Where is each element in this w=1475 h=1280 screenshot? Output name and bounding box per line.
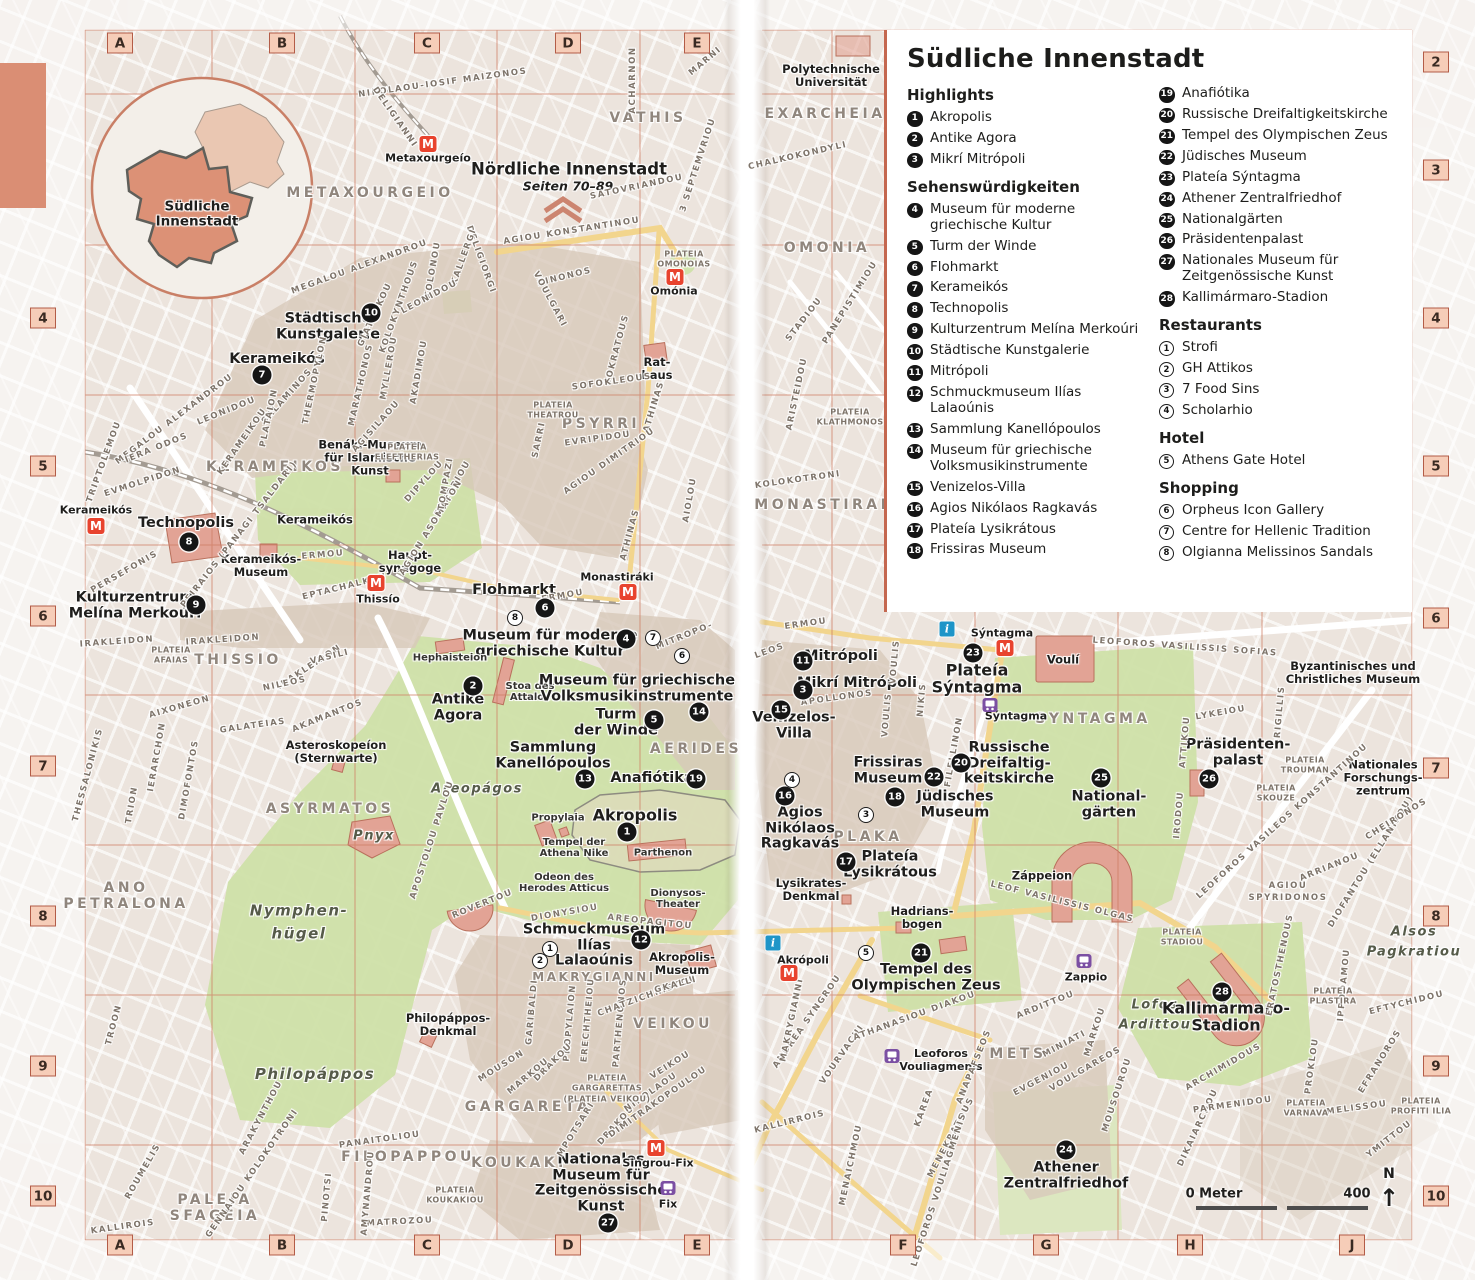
legend-item: 15Venizelos-Villa bbox=[907, 480, 1147, 496]
station-label: Thissío bbox=[356, 593, 400, 606]
sight-legend-marker-20: 20 bbox=[1159, 108, 1175, 124]
poi-label: Präsidenten- palast bbox=[1186, 737, 1291, 768]
terrain-label: Pnyx bbox=[353, 826, 395, 846]
legend-item-label: Russische Dreifaltigkeitskirche bbox=[1182, 106, 1388, 122]
sight-legend-marker-15: 15 bbox=[907, 481, 923, 497]
grid-letter-J: J bbox=[1339, 1235, 1365, 1256]
poi-label: Russische Dreifaltig- keitskirche bbox=[964, 741, 1054, 788]
station-label: Zappio bbox=[1065, 971, 1107, 984]
poi-label: Asteroskopeíon (Sternwarte) bbox=[286, 739, 387, 765]
legend-item-label: 7 Food Sins bbox=[1182, 381, 1259, 397]
district-label: ANO PETRALONA bbox=[63, 880, 188, 912]
legend-item-label: Kallimármaro-Stadion bbox=[1182, 289, 1328, 305]
poi-label: Voulí bbox=[1047, 654, 1079, 667]
legend-item: 25Nationalgärten bbox=[1159, 212, 1400, 228]
sight-marker-10: 10 bbox=[362, 304, 381, 323]
legend-item-label: Anafiótika bbox=[1182, 85, 1250, 101]
poi-label: Akropolis- Museum bbox=[649, 951, 715, 977]
legend-item: 10Städtische Kunstgalerie bbox=[907, 343, 1147, 359]
sight-legend-marker-17: 17 bbox=[907, 523, 923, 539]
legend-item-label: Athens Gate Hotel bbox=[1182, 452, 1305, 468]
venue-legend-marker-4: 4 bbox=[1159, 404, 1174, 419]
poi-label: Antike Agora bbox=[432, 692, 485, 723]
station-label: Metaxourgeío bbox=[385, 152, 471, 165]
legend-item-label: Nationales Museum für Zeitgenössische Ku… bbox=[1182, 252, 1338, 284]
poi-label: Agios Nikólaos Ragkavás bbox=[761, 806, 840, 853]
poi-label: National- gärten bbox=[1072, 789, 1147, 820]
legend-item-label: Plateía Lysikrátous bbox=[930, 521, 1056, 537]
legend-item-label: Akropolis bbox=[930, 109, 992, 125]
legend-item-label: Olgianna Melissinos Sandals bbox=[1182, 544, 1373, 560]
legend-heading-hotel: Hotel bbox=[1159, 429, 1400, 447]
page-reference: Nördliche Innenstadt bbox=[471, 160, 667, 179]
legend-column-1: Highlights1Akropolis2Antike Agora3Mikrí … bbox=[907, 86, 1147, 566]
square-label: PLATEIA THEATROU bbox=[527, 401, 578, 422]
legend-item: 1Akropolis bbox=[907, 110, 1147, 126]
venue-marker-6: 6 bbox=[674, 648, 690, 664]
venue-marker-3: 3 bbox=[858, 807, 874, 823]
station-label: Monastiráki bbox=[580, 571, 653, 584]
grid-number-4: 4 bbox=[30, 308, 56, 329]
grid-number-10: 10 bbox=[30, 1186, 56, 1207]
legend-item-label: Jüdisches Museum bbox=[1182, 148, 1307, 164]
legend-item-label: Kerameikós bbox=[930, 279, 1008, 295]
venue-marker-2: 2 bbox=[532, 953, 548, 969]
sight-marker-12: 12 bbox=[632, 931, 651, 950]
tram-leoforos-vouliagmenis-tram-icon bbox=[885, 1049, 900, 1063]
district-label: SYNTAGMA bbox=[1035, 711, 1151, 727]
sight-legend-marker-4: 4 bbox=[907, 203, 923, 219]
grid-letter-F: F bbox=[890, 1235, 916, 1256]
legend-item-label: Plateía Sýntagma bbox=[1182, 169, 1301, 185]
sight-legend-marker-16: 16 bbox=[907, 502, 923, 518]
square-label: PLATEIA PROFITI ILIA bbox=[1391, 1097, 1452, 1118]
poi-label: Jüdisches Museum bbox=[916, 789, 993, 820]
legend-item-label: Antike Agora bbox=[930, 130, 1017, 146]
grid-number-7: 7 bbox=[30, 756, 56, 777]
sight-legend-marker-8: 8 bbox=[907, 302, 923, 318]
legend-item-label: Frissiras Museum bbox=[930, 541, 1046, 557]
street-label: AGIOU SPYRIDONOS bbox=[1249, 881, 1328, 905]
sight-marker-20: 20 bbox=[952, 754, 971, 773]
venue-marker-8: 8 bbox=[507, 610, 523, 626]
info-makrygianni-info-icon: i bbox=[766, 936, 781, 951]
legend-item-label: Agios Nikólaos Ragkavás bbox=[930, 500, 1097, 516]
legend-item: 3Mikrí Mitrópoli bbox=[907, 152, 1147, 168]
scale-start-label: 0 Meter bbox=[1186, 1187, 1243, 1202]
poi-label: Byzantinisches und Christliches Museum bbox=[1286, 660, 1421, 686]
venue-legend-marker-6: 6 bbox=[1159, 504, 1174, 519]
sight-marker-27: 27 bbox=[599, 1214, 618, 1233]
legend-item: 18Frissiras Museum bbox=[907, 542, 1147, 558]
square-label: PLATEIA TROUMAN bbox=[1281, 756, 1330, 777]
district-label: VEIKOU bbox=[633, 1016, 713, 1032]
square-label: PLATEIA GARGARETTAS (PLATEIA VEIKOU) bbox=[564, 1073, 651, 1104]
legend-item: 28Kallimármaro-Stadion bbox=[1159, 290, 1400, 306]
sight-marker-11: 11 bbox=[794, 652, 813, 671]
grid-number-2: 2 bbox=[1423, 52, 1449, 73]
poi-label: Museum für moderne griechische Kultur bbox=[462, 628, 637, 659]
legend-item: 21Tempel des Olympischen Zeus bbox=[1159, 128, 1400, 144]
legend-item-label: Technopolis bbox=[930, 300, 1008, 316]
grid-letter-H: H bbox=[1177, 1235, 1203, 1256]
sight-legend-marker-6: 6 bbox=[907, 261, 923, 277]
grid-number-9: 9 bbox=[1423, 1056, 1449, 1077]
sight-marker-14: 14 bbox=[690, 703, 709, 722]
grid-number-4: 4 bbox=[1423, 308, 1449, 329]
sight-marker-22: 22 bbox=[925, 768, 944, 787]
legend-item: 27Nationales Museum für Zeitgenössische … bbox=[1159, 253, 1400, 285]
legend-heading-restaurants: Restaurants bbox=[1159, 316, 1400, 334]
legend-item: 9Kulturzentrum Melína Merkoúri bbox=[907, 322, 1147, 338]
poi-label: Mitrópoli bbox=[804, 649, 878, 665]
sight-legend-marker-13: 13 bbox=[907, 423, 923, 439]
sight-marker-15: 15 bbox=[772, 701, 791, 720]
district-label: THISSIO bbox=[194, 652, 282, 668]
grid-letter-E: E bbox=[684, 33, 710, 54]
sight-marker-3: 3 bbox=[794, 681, 813, 700]
north-arrow-icon: ↑ bbox=[1379, 1184, 1399, 1212]
tram-zappio-tram-icon bbox=[1077, 954, 1092, 968]
legend-item-label: Nationalgärten bbox=[1182, 211, 1283, 227]
sight-legend-marker-22: 22 bbox=[1159, 150, 1175, 166]
legend-panel: Südliche Innenstadt Highlights1Akropolis… bbox=[884, 30, 1412, 612]
grid-letter-C: C bbox=[414, 33, 440, 54]
legend-item-label: Centre for Hellenic Tradition bbox=[1182, 523, 1371, 539]
poi-label: Odeon des Herodes Atticus bbox=[519, 872, 609, 894]
district-label: ASYRMATOS bbox=[266, 801, 395, 817]
square-label: PLATEIA KOUKAKIOU bbox=[426, 1186, 484, 1207]
poi-label: Tempel des Olympischen Zeus bbox=[851, 962, 1000, 993]
metro-monastiraki-metro-icon: M bbox=[620, 584, 637, 600]
poi-label: Venizelos- Villa bbox=[752, 710, 835, 741]
akropolis-plateau bbox=[572, 790, 740, 872]
sight-legend-marker-18: 18 bbox=[907, 543, 923, 559]
sight-legend-marker-2: 2 bbox=[907, 132, 923, 148]
sight-marker-18: 18 bbox=[886, 788, 905, 807]
sight-marker-17: 17 bbox=[837, 853, 856, 872]
grid-number-3: 3 bbox=[1423, 160, 1449, 181]
poi-label: Hephaisteion bbox=[413, 652, 488, 663]
legend-item: 7Kerameikós bbox=[907, 280, 1147, 296]
legend-item-label: Scholarhio bbox=[1182, 402, 1253, 418]
district-label: MONASTIRAKI bbox=[754, 497, 903, 513]
sight-legend-marker-14: 14 bbox=[907, 444, 923, 460]
poi-label: Záppeion bbox=[1012, 870, 1072, 883]
sight-marker-1: 1 bbox=[618, 823, 637, 842]
sight-legend-marker-28: 28 bbox=[1159, 291, 1175, 307]
legend-item: 24Athener Zentralfriedhof bbox=[1159, 191, 1400, 207]
legend-item: 4Museum für moderne griechische Kultur bbox=[907, 202, 1147, 234]
venue-legend-marker-8: 8 bbox=[1159, 546, 1174, 561]
sight-legend-marker-27: 27 bbox=[1159, 254, 1175, 270]
legend-item-label: Turm der Winde bbox=[930, 238, 1036, 254]
poi-label: Südliche Innenstadt bbox=[156, 199, 239, 228]
poi-label: Kerameikós bbox=[277, 514, 353, 527]
venue-legend-marker-7: 7 bbox=[1159, 525, 1174, 540]
sight-marker-5: 5 bbox=[645, 711, 664, 730]
station-label: Singrou-Fix bbox=[622, 1157, 693, 1170]
station-label: Kerameikós bbox=[60, 504, 132, 517]
legend-item: 8Olgianna Melissinos Sandals bbox=[1159, 545, 1400, 561]
poi-label: Museum für griechische Volksmusikinstrum… bbox=[539, 673, 735, 704]
legend-item: 5Athens Gate Hotel bbox=[1159, 453, 1400, 469]
metro-kerameikos-metro-icon: M bbox=[88, 518, 105, 534]
scale-bar bbox=[1196, 1206, 1368, 1210]
sight-legend-marker-11: 11 bbox=[907, 365, 923, 381]
legend-list-0: 1Akropolis2Antike Agora3Mikrí Mitrópoli bbox=[907, 110, 1147, 168]
legend-item-label: Orpheus Icon Gallery bbox=[1182, 502, 1324, 518]
grid-number-6: 6 bbox=[30, 606, 56, 627]
sight-legend-marker-19: 19 bbox=[1159, 87, 1175, 103]
poi-label: Tempel der Athena Nike bbox=[540, 837, 609, 859]
legend-item-label: Athener Zentralfriedhof bbox=[1182, 190, 1341, 206]
sight-marker-25: 25 bbox=[1092, 769, 1111, 788]
grid-number-8: 8 bbox=[30, 906, 56, 927]
terrain-label: Nymphen- hügel bbox=[250, 900, 348, 945]
legend-item-label: Venizelos-Villa bbox=[930, 479, 1026, 495]
station-label: Omónia bbox=[650, 285, 697, 298]
grid-number-5: 5 bbox=[1423, 456, 1449, 477]
metro-akropoli-metro-icon: M bbox=[781, 965, 798, 981]
info-syntagma-info-icon: i bbox=[940, 622, 955, 637]
venue-marker-5: 5 bbox=[858, 945, 874, 961]
legend-item-label: Museum für moderne griechische Kultur bbox=[930, 201, 1075, 233]
legend-item: 5Turm der Winde bbox=[907, 239, 1147, 255]
legend-item: 2Antike Agora bbox=[907, 131, 1147, 147]
sight-marker-13: 13 bbox=[576, 770, 595, 789]
grid-letter-G: G bbox=[1033, 1235, 1059, 1256]
street-label: ACHARNON bbox=[628, 46, 640, 113]
legend-item: 14Museum für griechische Volksmusikinstr… bbox=[907, 443, 1147, 475]
station-label: N bbox=[1383, 1166, 1395, 1182]
page-title: Südliche Innenstadt bbox=[907, 44, 1400, 74]
poi-label: Polytechnische Universität bbox=[782, 63, 880, 89]
page-gutter bbox=[724, 0, 770, 1280]
venue-legend-marker-5: 5 bbox=[1159, 454, 1174, 469]
map-spread: Südliche Innenstadt Highlights1Akropolis… bbox=[0, 0, 1475, 1280]
legend-item: 4Scholarhio bbox=[1159, 403, 1400, 419]
chapter-tab bbox=[0, 63, 46, 208]
locator-inset bbox=[92, 78, 312, 298]
legend-item: 26Präsidentenpalast bbox=[1159, 232, 1400, 248]
legend-list-1: 4Museum für moderne griechische Kultur5T… bbox=[907, 202, 1147, 559]
legend-column-2: 19Anafiótika20Russische Dreifaltigkeitsk… bbox=[1159, 86, 1400, 566]
legend-heading-highlights: Highlights bbox=[907, 86, 1147, 104]
legend-item: 11Mitrópoli bbox=[907, 364, 1147, 380]
poi-label: Plateía Lysikrátous bbox=[843, 849, 937, 880]
grid-number-9: 9 bbox=[30, 1056, 56, 1077]
metro-syntagma-metro-icon: M bbox=[997, 640, 1014, 656]
grid-letter-B: B bbox=[269, 33, 295, 54]
scale-end-label: 400 bbox=[1343, 1187, 1370, 1202]
poi-label: Sammlung Kanellópoulos bbox=[495, 740, 610, 771]
grid-letter-C: C bbox=[414, 1235, 440, 1256]
sight-marker-19: 19 bbox=[687, 770, 706, 789]
legend-item: 13Sammlung Kanellópoulos bbox=[907, 422, 1147, 438]
legend-item: 12Schmuckmuseum Ilías Lalaoúnis bbox=[907, 385, 1147, 417]
legend-item-label: Kulturzentrum Melína Merkoúri bbox=[930, 321, 1138, 337]
district-label: FILOPAPPOU bbox=[341, 1149, 475, 1165]
legend-heading-shopping: Shopping bbox=[1159, 479, 1400, 497]
venue-marker-7: 7 bbox=[645, 630, 661, 646]
tram-fix-tram-icon bbox=[661, 1181, 676, 1195]
legend-list-2: 19Anafiótika20Russische Dreifaltigkeitsk… bbox=[1159, 86, 1400, 306]
legend-item-label: Museum für griechische Volksmusikinstrum… bbox=[930, 442, 1092, 474]
legend-item-label: Flohmarkt bbox=[930, 259, 998, 275]
sight-marker-7: 7 bbox=[253, 366, 272, 385]
sight-legend-marker-9: 9 bbox=[907, 323, 923, 339]
sight-marker-8: 8 bbox=[180, 533, 199, 552]
legend-item-label: Städtische Kunstgalerie bbox=[930, 342, 1089, 358]
square-label: PLATEIA VARNAVA bbox=[1284, 1099, 1329, 1120]
grid-number-8: 8 bbox=[1423, 906, 1449, 927]
grid-letter-D: D bbox=[555, 33, 581, 54]
poi-label: Plateía Sýntagma bbox=[932, 662, 1023, 697]
district-label: METS bbox=[989, 1046, 1046, 1062]
legend-item: 17Plateía Lysikrátous bbox=[907, 522, 1147, 538]
poi-label: Philopáppos- Denkmal bbox=[406, 1012, 490, 1038]
legend-item-label: Sammlung Kanellópoulos bbox=[930, 421, 1101, 437]
poi-label: Parthenon bbox=[634, 847, 693, 858]
legend-item: 8Technopolis bbox=[907, 301, 1147, 317]
sight-legend-marker-12: 12 bbox=[907, 386, 923, 402]
grid-number-7: 7 bbox=[1423, 758, 1449, 779]
district-label: PLAKA bbox=[833, 829, 902, 845]
legend-item: 19Anafiótika bbox=[1159, 86, 1400, 102]
venue-legend-marker-3: 3 bbox=[1159, 383, 1174, 398]
sight-marker-28: 28 bbox=[1213, 983, 1232, 1002]
grid-letter-A: A bbox=[107, 1235, 133, 1256]
grid-letter-A: A bbox=[107, 33, 133, 54]
legend-item: 23Plateía Sýntagma bbox=[1159, 170, 1400, 186]
district-label: VATHIS bbox=[609, 110, 686, 126]
terrain-label: Alsos Pagkratiou bbox=[1367, 923, 1461, 962]
poi-label: Dionysos- Theater bbox=[650, 888, 705, 910]
legend-item-label: Schmuckmuseum Ilías Lalaoúnis bbox=[930, 384, 1081, 416]
district-label: OMONIA bbox=[784, 240, 871, 256]
sight-legend-marker-7: 7 bbox=[907, 281, 923, 297]
metro-metaxourgeio-metro-icon: M bbox=[420, 136, 437, 152]
legend-item-label: Strofi bbox=[1182, 339, 1218, 355]
sight-legend-marker-1: 1 bbox=[907, 111, 923, 127]
poi-label: Athener Zentralfriedhof bbox=[1004, 1160, 1129, 1191]
legend-item-label: Mitrópoli bbox=[930, 363, 989, 379]
tram-syntagma-tram-icon bbox=[983, 698, 998, 712]
sight-legend-marker-21: 21 bbox=[1159, 129, 1175, 145]
grid-number-5: 5 bbox=[30, 456, 56, 477]
sight-marker-16: 16 bbox=[776, 787, 795, 806]
legend-list-3: 1Strofi2GH Attikos37 Food Sins4Scholarhi… bbox=[1159, 340, 1400, 419]
square-label: PLATEIA KLATHMONOS bbox=[816, 408, 883, 429]
sight-marker-21: 21 bbox=[912, 944, 931, 963]
legend-item-label: GH Attikos bbox=[1182, 360, 1253, 376]
grid-letter-B: B bbox=[269, 1235, 295, 1256]
sight-marker-6: 6 bbox=[536, 599, 555, 618]
grid-number-6: 6 bbox=[1423, 608, 1449, 629]
district-label: METAXOURGEIO bbox=[286, 185, 453, 201]
legend-list-4: 5Athens Gate Hotel bbox=[1159, 453, 1400, 469]
poi-label: Frissiras Museum bbox=[854, 755, 923, 786]
square-label: PLATEIA OMONOIAS bbox=[657, 250, 710, 271]
legend-item-label: Präsidentenpalast bbox=[1182, 231, 1303, 247]
legend-item: 2GH Attikos bbox=[1159, 361, 1400, 377]
legend-item: 37 Food Sins bbox=[1159, 382, 1400, 398]
poi-label: Kerameikós- Museum bbox=[221, 553, 302, 579]
poi-label: Anafiótika bbox=[610, 771, 693, 787]
sight-legend-marker-10: 10 bbox=[907, 344, 923, 360]
square-label: PLATEIA SKOUZE bbox=[1256, 784, 1295, 805]
poi-label: Technopolis bbox=[138, 516, 234, 532]
district-label: EXARCHEIA bbox=[764, 106, 885, 122]
legend-item: 6Flohmarkt bbox=[907, 260, 1147, 276]
station-label: Sýntagma bbox=[971, 627, 1033, 640]
legend-item-label: Tempel des Olympischen Zeus bbox=[1182, 127, 1388, 143]
grid-letter-D: D bbox=[555, 1235, 581, 1256]
legend-item: 16Agios Nikólaos Ragkavás bbox=[907, 501, 1147, 517]
sight-legend-marker-3: 3 bbox=[907, 153, 923, 169]
venue-marker-4: 4 bbox=[784, 772, 800, 788]
grid-letter-E: E bbox=[684, 1235, 710, 1256]
metro-singrou-fix-metro-icon: M bbox=[648, 1140, 665, 1156]
sight-marker-4: 4 bbox=[617, 630, 636, 649]
metro-thissio-metro-icon: M bbox=[368, 575, 385, 591]
grid-number-10: 10 bbox=[1423, 1186, 1449, 1207]
sight-marker-23: 23 bbox=[964, 644, 983, 663]
poi-label: Lysikrates- Denkmal bbox=[776, 877, 847, 903]
legend-item: 7Centre for Hellenic Tradition bbox=[1159, 524, 1400, 540]
station-label: Fix bbox=[659, 1198, 677, 1211]
square-label: PLATEIA STADIOU bbox=[1161, 928, 1204, 949]
square-label: PLATEIA AFAIAS bbox=[151, 646, 190, 667]
terrain-label: Philopáppos bbox=[255, 1063, 375, 1086]
district-label: AERIDES bbox=[650, 741, 742, 757]
page-ref-arrow-icon bbox=[541, 196, 585, 224]
poi-label: Hadrians- bogen bbox=[891, 905, 954, 931]
legend-item: 6Orpheus Icon Gallery bbox=[1159, 503, 1400, 519]
sight-legend-marker-24: 24 bbox=[1159, 192, 1175, 208]
sight-legend-marker-25: 25 bbox=[1159, 213, 1175, 229]
sight-marker-2: 2 bbox=[464, 677, 483, 696]
square-label: PLATEIA PLASTIRA bbox=[1310, 987, 1357, 1008]
legend-list-5: 6Orpheus Icon Gallery7Centre for Helleni… bbox=[1159, 503, 1400, 561]
poi-label: Kerameikós bbox=[229, 352, 325, 368]
sight-marker-26: 26 bbox=[1200, 770, 1219, 789]
square-label: PLATEIA ELEFTHERIAS bbox=[375, 443, 440, 464]
sight-marker-9: 9 bbox=[187, 596, 206, 615]
poi-label: Propylaia bbox=[531, 812, 584, 823]
sight-legend-marker-5: 5 bbox=[907, 240, 923, 256]
sight-marker-24: 24 bbox=[1057, 1141, 1076, 1160]
legend-item: 22Jüdisches Museum bbox=[1159, 149, 1400, 165]
legend-heading-sehenswürdigkeiten: Sehenswürdigkeiten bbox=[907, 178, 1147, 196]
legend-item: 20Russische Dreifaltigkeitskirche bbox=[1159, 107, 1400, 123]
legend-item: 1Strofi bbox=[1159, 340, 1400, 356]
venue-legend-marker-1: 1 bbox=[1159, 341, 1174, 356]
sight-legend-marker-26: 26 bbox=[1159, 233, 1175, 249]
poi-label: Akropolis bbox=[593, 806, 678, 823]
metro-omonia-metro-icon: M bbox=[667, 269, 684, 285]
venue-legend-marker-2: 2 bbox=[1159, 362, 1174, 377]
legend-item-label: Mikrí Mitrópoli bbox=[930, 151, 1025, 167]
sight-legend-marker-23: 23 bbox=[1159, 171, 1175, 187]
